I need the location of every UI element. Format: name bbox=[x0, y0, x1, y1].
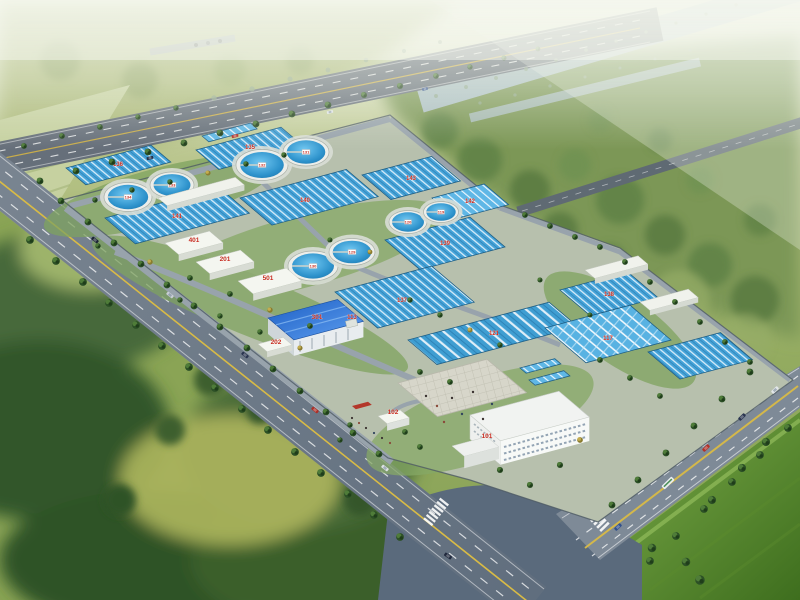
tree bbox=[26, 236, 34, 244]
tree bbox=[547, 223, 553, 229]
tree bbox=[344, 490, 352, 498]
tree bbox=[497, 342, 502, 347]
tree bbox=[728, 478, 736, 486]
tree bbox=[347, 422, 352, 427]
tree bbox=[264, 426, 272, 434]
tree bbox=[700, 505, 708, 513]
tree bbox=[572, 234, 578, 240]
tree bbox=[164, 282, 171, 289]
tree bbox=[323, 409, 330, 416]
tree bbox=[147, 259, 152, 264]
tree bbox=[37, 178, 44, 185]
tree bbox=[762, 438, 770, 446]
person bbox=[351, 417, 353, 419]
tree bbox=[217, 313, 222, 318]
tank-label: 120 bbox=[405, 219, 412, 224]
person bbox=[365, 427, 367, 429]
tree bbox=[672, 299, 678, 305]
basin-label: 117 bbox=[603, 336, 613, 342]
tree bbox=[129, 187, 134, 192]
basin-label: 142 bbox=[465, 199, 476, 205]
tree bbox=[317, 469, 325, 477]
person bbox=[358, 422, 360, 424]
tree bbox=[597, 357, 603, 363]
building-label: 401 bbox=[189, 237, 200, 244]
tank-label: 132 bbox=[259, 163, 266, 168]
tree bbox=[402, 429, 408, 435]
tree bbox=[407, 297, 412, 302]
person bbox=[491, 403, 493, 405]
tree bbox=[627, 375, 633, 381]
tree bbox=[622, 259, 628, 265]
tree bbox=[682, 558, 691, 567]
clarifier-tank: 119 bbox=[420, 198, 463, 226]
building-label: 201 bbox=[220, 256, 231, 263]
tree bbox=[609, 502, 616, 509]
tree bbox=[784, 424, 792, 432]
tree bbox=[646, 557, 654, 565]
tree bbox=[281, 152, 286, 157]
tree bbox=[747, 369, 754, 376]
tree bbox=[217, 324, 224, 331]
tree bbox=[73, 168, 80, 175]
tree bbox=[270, 366, 277, 373]
person bbox=[443, 421, 445, 423]
tree bbox=[58, 198, 65, 205]
tree bbox=[177, 297, 182, 302]
tree bbox=[417, 369, 423, 375]
building-label: 202 bbox=[271, 339, 282, 346]
scene-canvas: 132 131 134 133 130 129 bbox=[0, 0, 800, 600]
tree bbox=[243, 161, 248, 166]
tree bbox=[376, 451, 383, 458]
tree bbox=[257, 329, 262, 334]
basin-label: 138 bbox=[604, 292, 615, 298]
pump-structure-113: 113 bbox=[345, 315, 357, 328]
person bbox=[451, 397, 453, 399]
tree bbox=[167, 179, 172, 184]
tree bbox=[697, 319, 703, 325]
tree bbox=[756, 451, 764, 459]
tree bbox=[297, 345, 302, 350]
tree bbox=[307, 323, 313, 329]
tree bbox=[657, 393, 663, 399]
tree bbox=[368, 250, 373, 255]
tree bbox=[497, 467, 503, 473]
tree bbox=[109, 159, 116, 166]
tree bbox=[95, 243, 100, 248]
tree bbox=[211, 384, 219, 392]
tree bbox=[205, 170, 210, 175]
tree bbox=[238, 405, 246, 413]
haze-band bbox=[0, 0, 800, 60]
tank-label: 134 bbox=[125, 195, 132, 200]
tree bbox=[695, 575, 705, 585]
building-label: 501 bbox=[263, 275, 274, 282]
tree bbox=[187, 275, 193, 281]
basin-label: 139 bbox=[440, 241, 451, 247]
person bbox=[373, 432, 375, 434]
tank-label: 130 bbox=[310, 264, 317, 269]
tree bbox=[52, 257, 60, 265]
building-label: 101 bbox=[482, 433, 493, 440]
tree bbox=[587, 312, 592, 317]
tree bbox=[527, 482, 533, 488]
tree bbox=[467, 327, 472, 332]
building-label: 102 bbox=[388, 409, 399, 416]
tree bbox=[447, 379, 453, 385]
building-label: 301 bbox=[312, 314, 323, 321]
person bbox=[389, 442, 391, 444]
tree bbox=[350, 430, 357, 437]
tree bbox=[79, 278, 87, 286]
person bbox=[461, 413, 463, 415]
tank-label: 131 bbox=[303, 150, 310, 155]
person bbox=[381, 437, 383, 439]
tree bbox=[437, 312, 442, 317]
tree bbox=[647, 279, 653, 285]
person bbox=[472, 391, 474, 393]
tree bbox=[297, 388, 304, 395]
tree bbox=[370, 511, 378, 519]
person bbox=[436, 405, 438, 407]
basin-label: 141 bbox=[172, 214, 183, 220]
tank-label: 129 bbox=[349, 250, 356, 255]
tree bbox=[191, 303, 198, 310]
tree bbox=[227, 291, 233, 297]
tree bbox=[132, 321, 140, 329]
structure-label: 113 bbox=[347, 315, 357, 321]
tree bbox=[396, 533, 404, 541]
tree bbox=[244, 345, 251, 352]
person bbox=[482, 418, 484, 420]
tree bbox=[337, 437, 342, 442]
tree bbox=[597, 244, 603, 250]
tree bbox=[719, 396, 726, 403]
basin-label: 143 bbox=[406, 176, 417, 182]
tree bbox=[722, 339, 728, 345]
tank-label: 119 bbox=[438, 209, 445, 214]
tree bbox=[138, 261, 145, 268]
tree bbox=[417, 444, 423, 450]
tree bbox=[92, 197, 97, 202]
tree bbox=[708, 496, 716, 504]
tree bbox=[557, 462, 563, 468]
person bbox=[425, 395, 427, 397]
tree bbox=[267, 307, 272, 312]
tree bbox=[185, 363, 193, 371]
tree bbox=[158, 342, 166, 350]
tree bbox=[691, 423, 698, 430]
tree bbox=[635, 477, 642, 484]
tree bbox=[327, 237, 332, 242]
tree bbox=[577, 437, 583, 443]
tree bbox=[663, 450, 670, 457]
tree bbox=[738, 464, 746, 472]
tree bbox=[747, 359, 753, 365]
basin-label: 137 bbox=[397, 298, 408, 304]
tree bbox=[672, 532, 680, 540]
tree bbox=[537, 277, 542, 282]
tree bbox=[648, 544, 657, 553]
tree bbox=[85, 219, 92, 226]
tree bbox=[291, 448, 299, 456]
tree bbox=[105, 299, 113, 307]
basin-label: 121 bbox=[489, 331, 500, 337]
tree bbox=[111, 240, 118, 247]
tree bbox=[522, 212, 528, 218]
aerial-rendering: 132 131 134 133 130 129 bbox=[0, 0, 800, 600]
basin-label: 140 bbox=[300, 198, 311, 204]
